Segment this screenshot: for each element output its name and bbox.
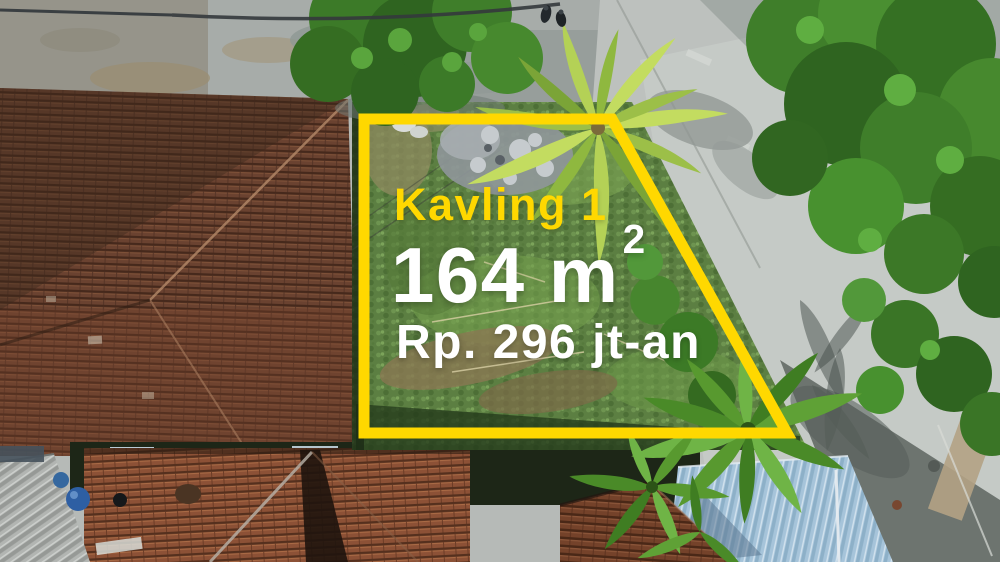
aerial-photo: Kavling 1 164 m2 Rp. 296 jt-an: [0, 0, 1000, 562]
photo-scene: [0, 0, 1000, 562]
bottom-tile-roofs: [84, 448, 470, 562]
terracotta-roof-left: [0, 88, 358, 456]
